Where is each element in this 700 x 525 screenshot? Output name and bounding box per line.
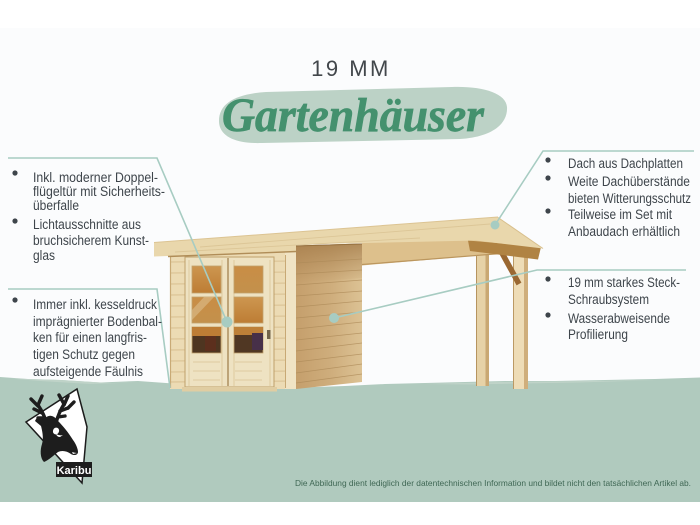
svg-text:tigen Schutz gegen: tigen Schutz gegen [33,347,135,362]
svg-text:Gartenhäuser: Gartenhäuser [222,89,485,142]
svg-text:Profilierung: Profilierung [568,327,628,342]
svg-text:19 MM: 19 MM [311,56,391,81]
svg-text:Die Abbildung dient lediglich: Die Abbildung dient lediglich der datent… [295,478,691,488]
svg-text:Lichtausschnitte aus: Lichtausschnitte aus [33,217,141,232]
svg-text:Wasserabweisende: Wasserabweisende [568,311,670,326]
svg-text:bruchsicherem Kunst-: bruchsicherem Kunst- [33,233,149,248]
svg-text:glas: glas [33,248,55,263]
svg-text:bieten Witterungsschutz: bieten Witterungsschutz [568,191,691,206]
svg-text:ken für einen langfris-: ken für einen langfris- [33,330,147,345]
svg-text:flügeltür mit Sicherheits-: flügeltür mit Sicherheits- [33,184,165,199]
svg-text:imprägnierter Bodenbal-: imprägnierter Bodenbal- [33,314,162,329]
svg-text:Teilweise im Set mit: Teilweise im Set mit [568,207,672,222]
svg-text:Karibu: Karibu [57,465,92,477]
svg-text:Dach aus Dachplatten: Dach aus Dachplatten [568,156,683,171]
svg-text:Weite Dachüberstände: Weite Dachüberstände [568,174,690,189]
svg-text:Immer inkl. kesseldruck: Immer inkl. kesseldruck [33,297,157,312]
svg-text:19 mm starkes Steck-: 19 mm starkes Steck- [568,275,680,290]
svg-text:überfalle: überfalle [33,198,79,213]
svg-text:Anbaudach erhältlich: Anbaudach erhältlich [568,224,680,239]
svg-text:aufsteigende Fäulnis: aufsteigende Fäulnis [33,364,143,379]
svg-text:Inkl. moderner Doppel-: Inkl. moderner Doppel- [33,170,158,185]
svg-text:Schraubsystem: Schraubsystem [568,292,649,307]
